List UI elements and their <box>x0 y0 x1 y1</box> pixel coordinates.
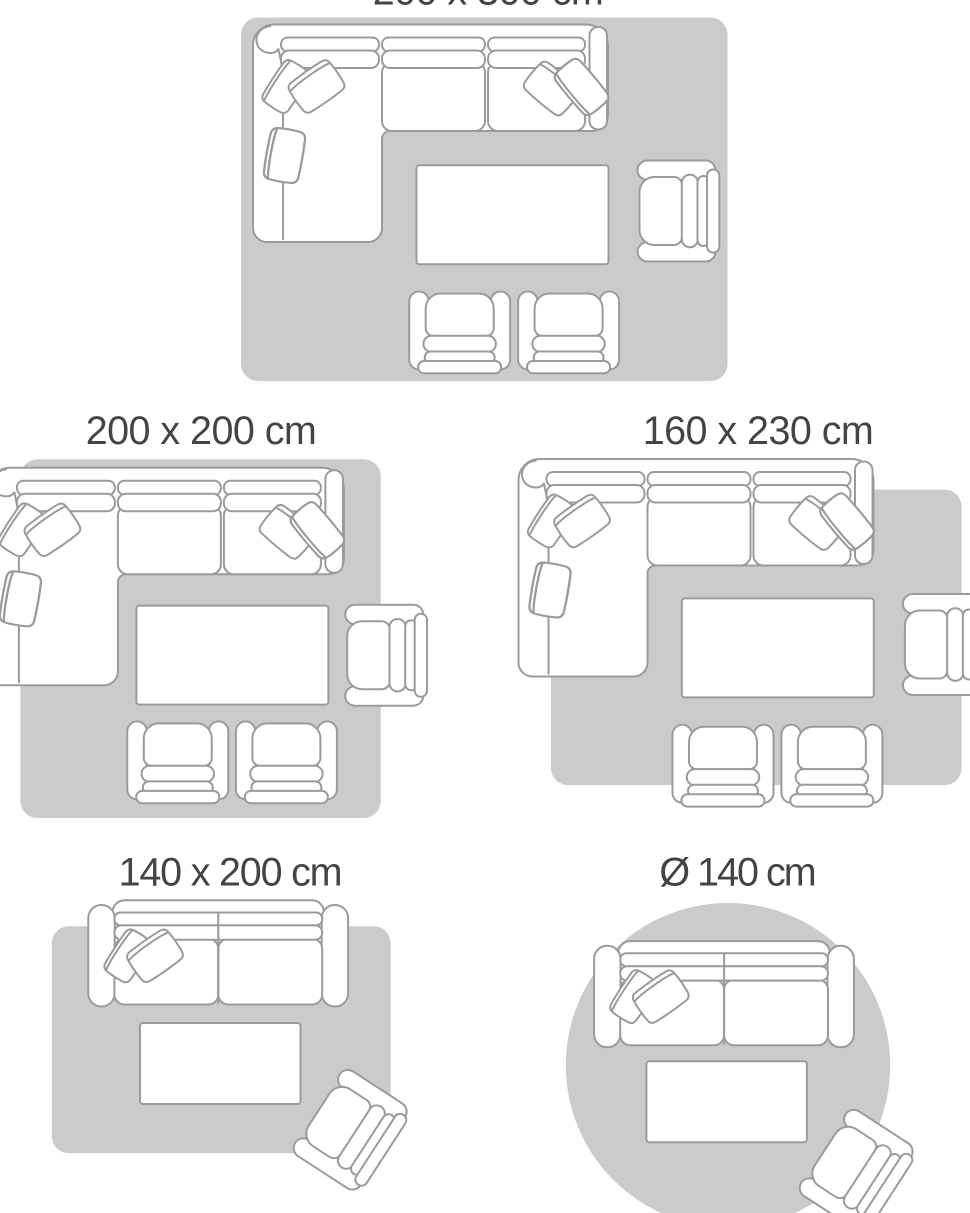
svg-text:160 x 230 cm: 160 x 230 cm <box>643 409 874 453</box>
svg-text:200 x 200 cm: 200 x 200 cm <box>86 409 317 453</box>
svg-text:Ø 140 cm: Ø 140 cm <box>659 851 814 895</box>
svg-text:140 x 200 cm: 140 x 200 cm <box>119 851 342 895</box>
svg-text:200 x 300 cm: 200 x 300 cm <box>373 0 604 14</box>
